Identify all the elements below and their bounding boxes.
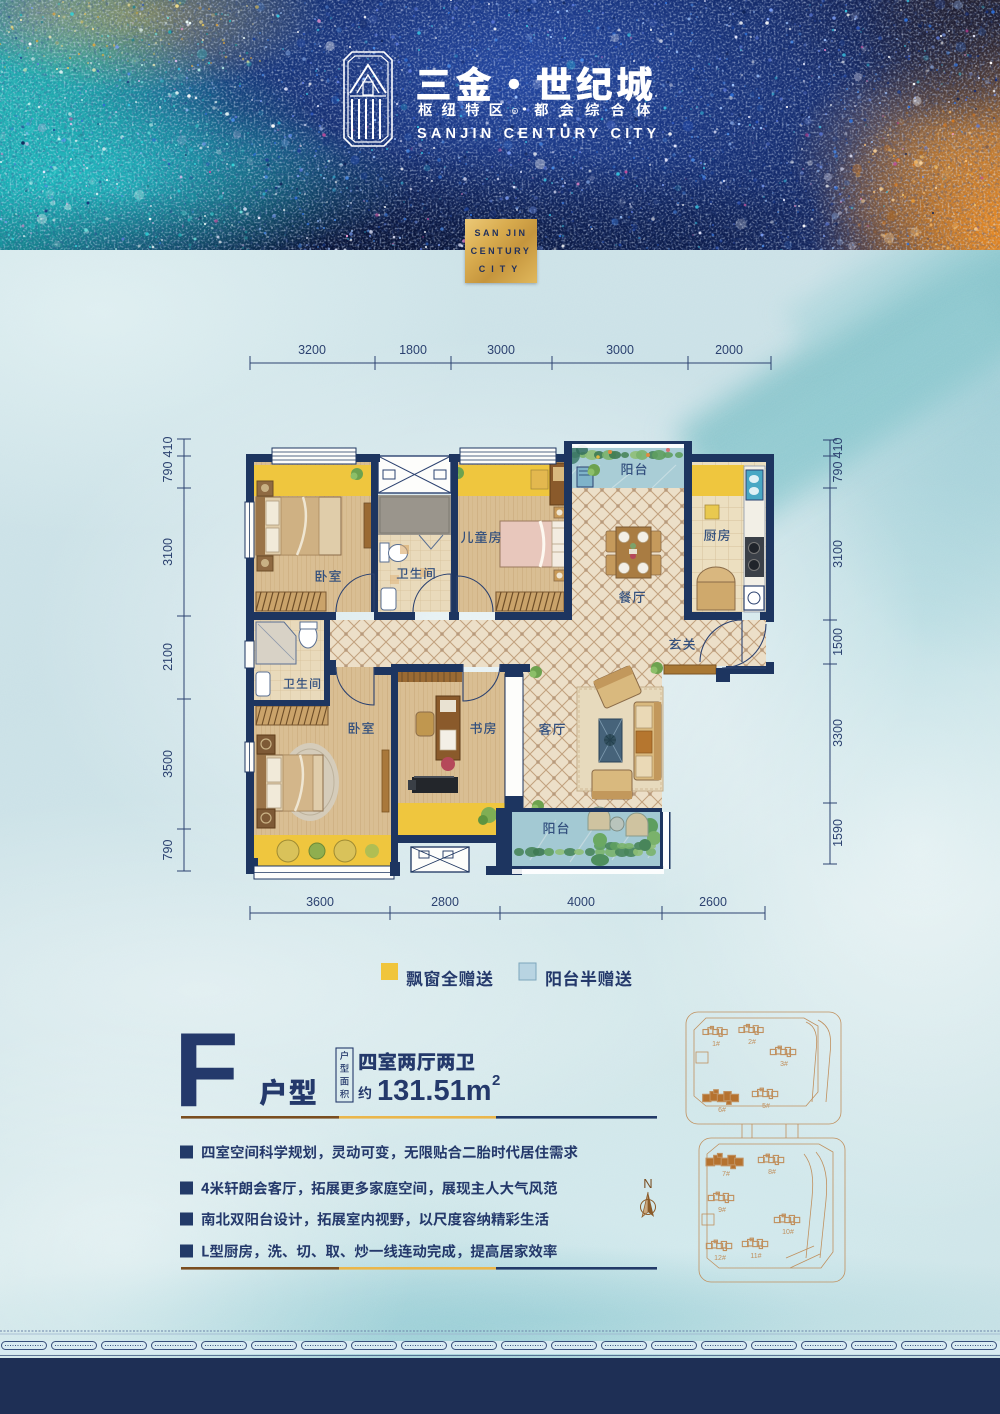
svg-text:3#: 3# bbox=[780, 1061, 788, 1068]
svg-text:410: 410 bbox=[831, 438, 845, 459]
svg-text:790: 790 bbox=[831, 462, 845, 483]
svg-text:3100: 3100 bbox=[161, 538, 175, 566]
svg-text:790: 790 bbox=[161, 462, 175, 483]
svg-text:1#: 1# bbox=[712, 1041, 720, 1048]
svg-text:2: 2 bbox=[492, 1072, 500, 1089]
svg-text:F: F bbox=[174, 1011, 239, 1129]
svg-text:3500: 3500 bbox=[161, 750, 175, 778]
svg-text:3100: 3100 bbox=[831, 540, 845, 568]
svg-text:1500: 1500 bbox=[831, 628, 845, 656]
svg-text:N: N bbox=[643, 1176, 652, 1191]
svg-text:3000: 3000 bbox=[487, 343, 515, 357]
svg-text:8#: 8# bbox=[768, 1169, 776, 1176]
svg-text:131.51m: 131.51m bbox=[377, 1075, 492, 1107]
svg-text:2100: 2100 bbox=[161, 643, 175, 671]
svg-text:12#: 12# bbox=[714, 1255, 726, 1262]
svg-text:3200: 3200 bbox=[298, 343, 326, 357]
svg-text:10#: 10# bbox=[782, 1229, 794, 1236]
svg-text:R: R bbox=[513, 109, 516, 114]
svg-text:SANJIN CENTURY CITY: SANJIN CENTURY CITY bbox=[417, 126, 660, 142]
svg-text:2000: 2000 bbox=[715, 343, 743, 357]
svg-text:1590: 1590 bbox=[831, 819, 845, 847]
svg-text:3000: 3000 bbox=[606, 343, 634, 357]
svg-text:7#: 7# bbox=[722, 1171, 730, 1178]
svg-text:2800: 2800 bbox=[431, 895, 459, 909]
svg-text:1800: 1800 bbox=[399, 343, 427, 357]
svg-text:6#: 6# bbox=[718, 1107, 726, 1114]
svg-text:4000: 4000 bbox=[567, 895, 595, 909]
svg-text:11#: 11# bbox=[750, 1253, 761, 1260]
svg-text:9#: 9# bbox=[718, 1207, 726, 1214]
svg-text:3300: 3300 bbox=[831, 719, 845, 747]
svg-text:2#: 2# bbox=[748, 1039, 756, 1046]
svg-text:790: 790 bbox=[161, 840, 175, 861]
svg-text:410: 410 bbox=[161, 437, 175, 458]
svg-text:3600: 3600 bbox=[306, 895, 334, 909]
svg-text:5#: 5# bbox=[762, 1103, 770, 1110]
svg-text:2600: 2600 bbox=[699, 895, 727, 909]
